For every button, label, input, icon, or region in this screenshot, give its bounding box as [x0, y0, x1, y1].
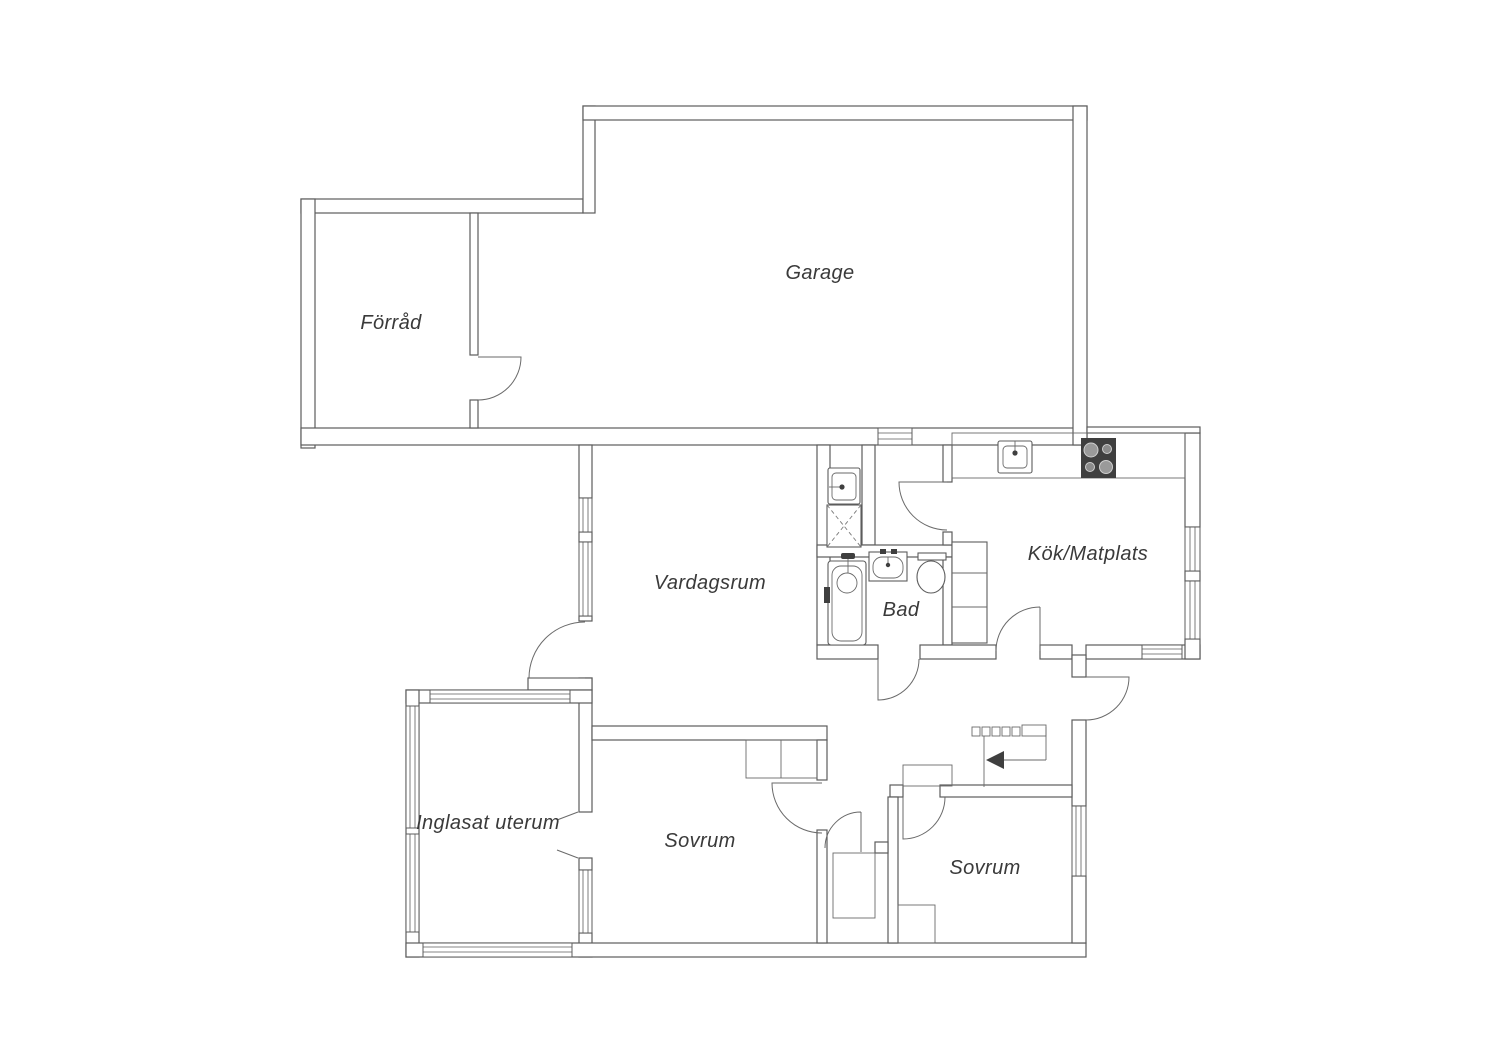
floorplan-drawing: Garage Förråd Vardagsrum Kök/Matplats Ba… [0, 0, 1500, 1060]
window-icon [1072, 806, 1086, 876]
floorplan-page: Garage Förråd Vardagsrum Kök/Matplats Ba… [0, 0, 1500, 1060]
door-icon [825, 812, 861, 852]
window-icon [406, 834, 419, 932]
window-icon [406, 706, 419, 828]
window-icon [878, 428, 912, 445]
kitchen-cabinets [952, 542, 987, 643]
window-icon [1185, 581, 1200, 639]
door-icon [878, 659, 919, 700]
window-icon [423, 943, 572, 957]
bathtub-icon [824, 553, 866, 645]
window-icon [1142, 645, 1182, 659]
room-label-forrad: Förråd [360, 312, 422, 334]
opening-splay [557, 812, 578, 858]
room-label-garage: Garage [785, 262, 854, 284]
room-label-vardagsrum: Vardagsrum [654, 572, 766, 594]
closet [898, 905, 935, 943]
window-icon [579, 870, 592, 933]
door-icon [529, 622, 585, 678]
window-icon [1185, 527, 1200, 571]
hall-cabinet [903, 765, 952, 786]
door-icon [899, 482, 947, 530]
washbasin-icon [869, 549, 907, 581]
toilet-icon [917, 553, 946, 593]
window-icon [430, 690, 570, 703]
stairs-icon [972, 725, 1046, 787]
shower-icon [827, 505, 861, 547]
window-icon [579, 498, 592, 532]
room-label-uterum: Inglasat uterum [416, 812, 560, 834]
room-label-sovrum-1: Sovrum [664, 830, 735, 852]
laundry-sink-icon [828, 468, 860, 504]
door-icon [903, 797, 945, 839]
room-label-sovrum-2: Sovrum [949, 857, 1020, 879]
stairs-direction-arrow [986, 751, 1004, 769]
door-icon [996, 607, 1040, 651]
room-label-bad: Bad [883, 599, 920, 621]
closet-shelf [833, 853, 875, 918]
door-icon [772, 783, 822, 833]
kitchen-sink-icon [998, 441, 1032, 473]
closet [746, 740, 817, 778]
door-icon [478, 357, 521, 400]
room-label-kok: Kök/Matplats [1028, 543, 1148, 565]
stove-icon [1081, 438, 1116, 478]
window-icon [579, 542, 592, 616]
door-icon [1086, 677, 1129, 720]
